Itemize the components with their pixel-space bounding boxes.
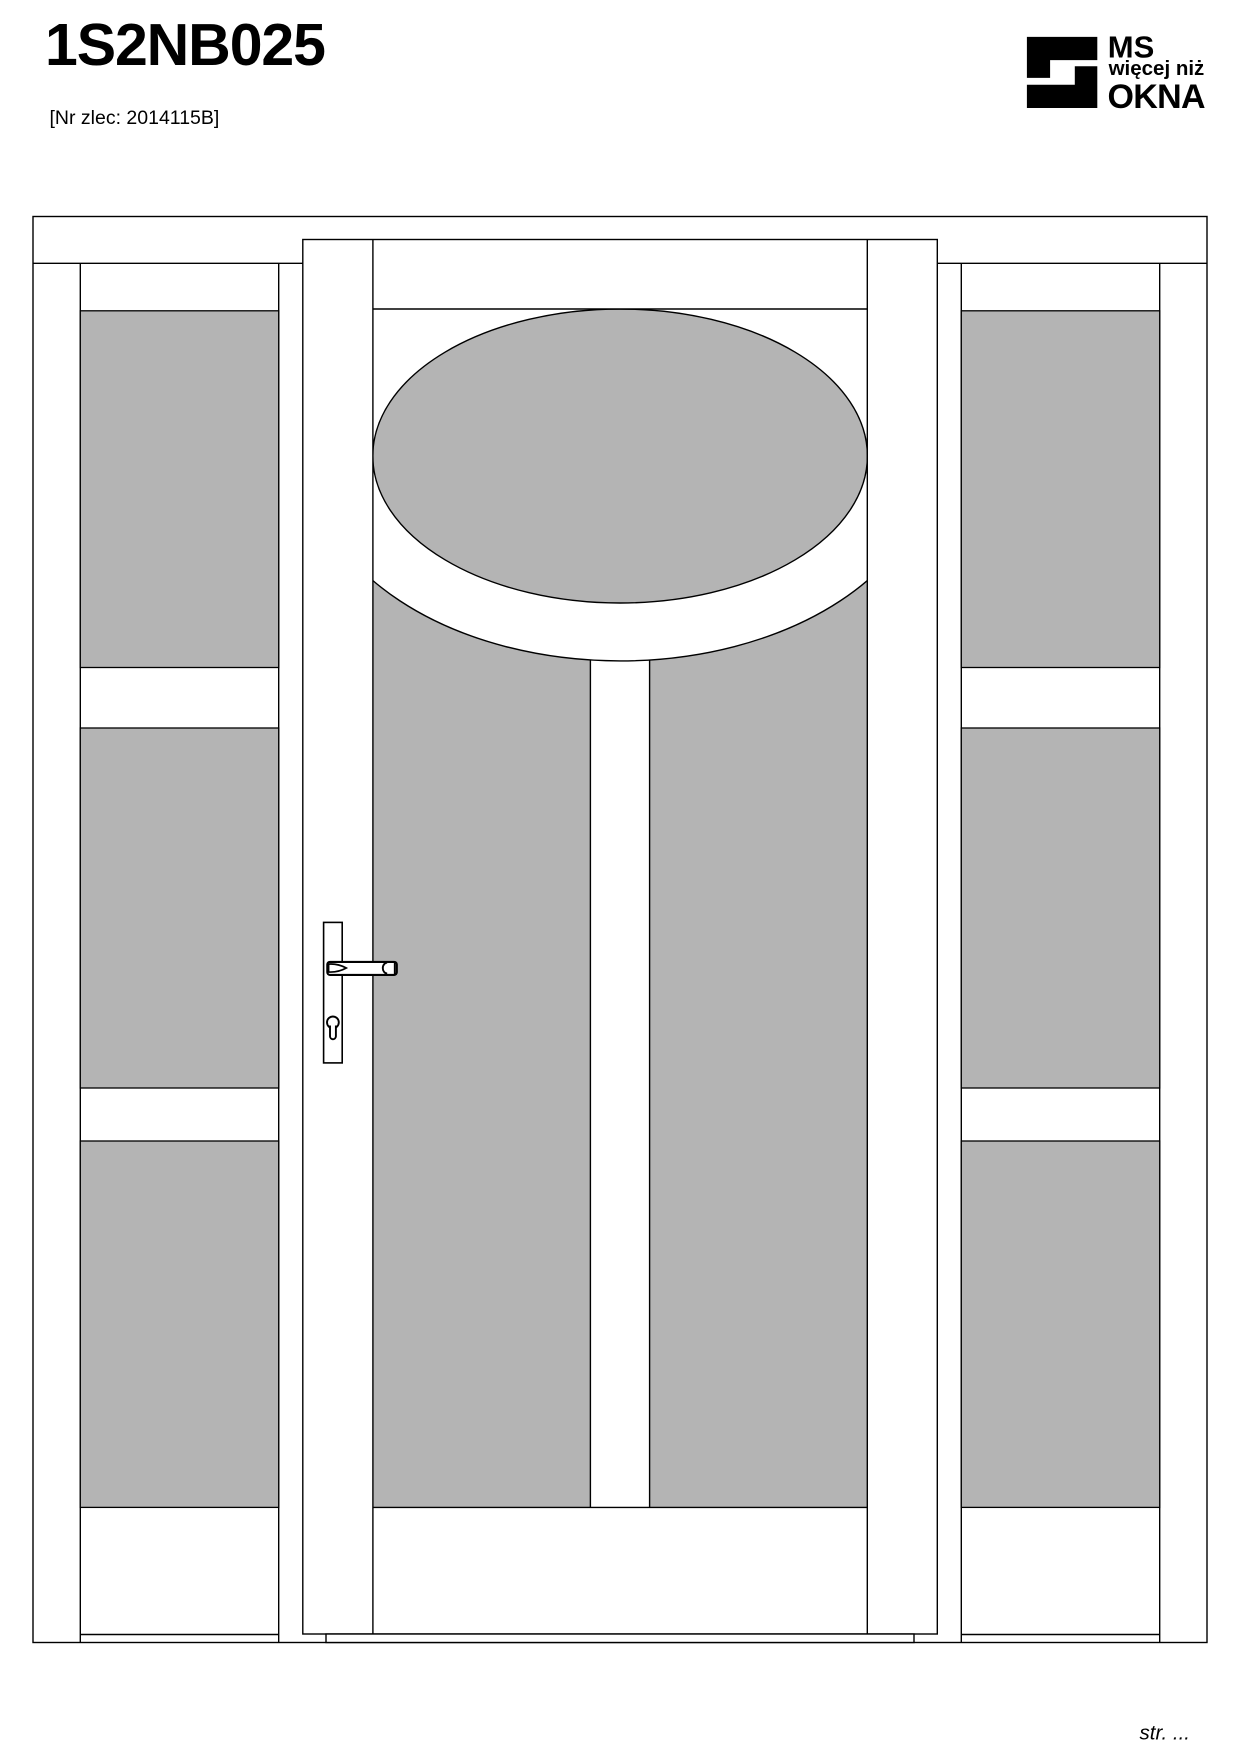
svg-text:str. ...: str. ... (1140, 1722, 1191, 1745)
svg-text:1S2NB025: 1S2NB025 (45, 12, 325, 78)
svg-text:OKNA: OKNA (1108, 78, 1205, 116)
svg-text:więcej niż: więcej niż (1108, 57, 1205, 80)
svg-text:[Nr zlec: 2014115B]: [Nr zlec: 2014115B] (50, 107, 220, 129)
